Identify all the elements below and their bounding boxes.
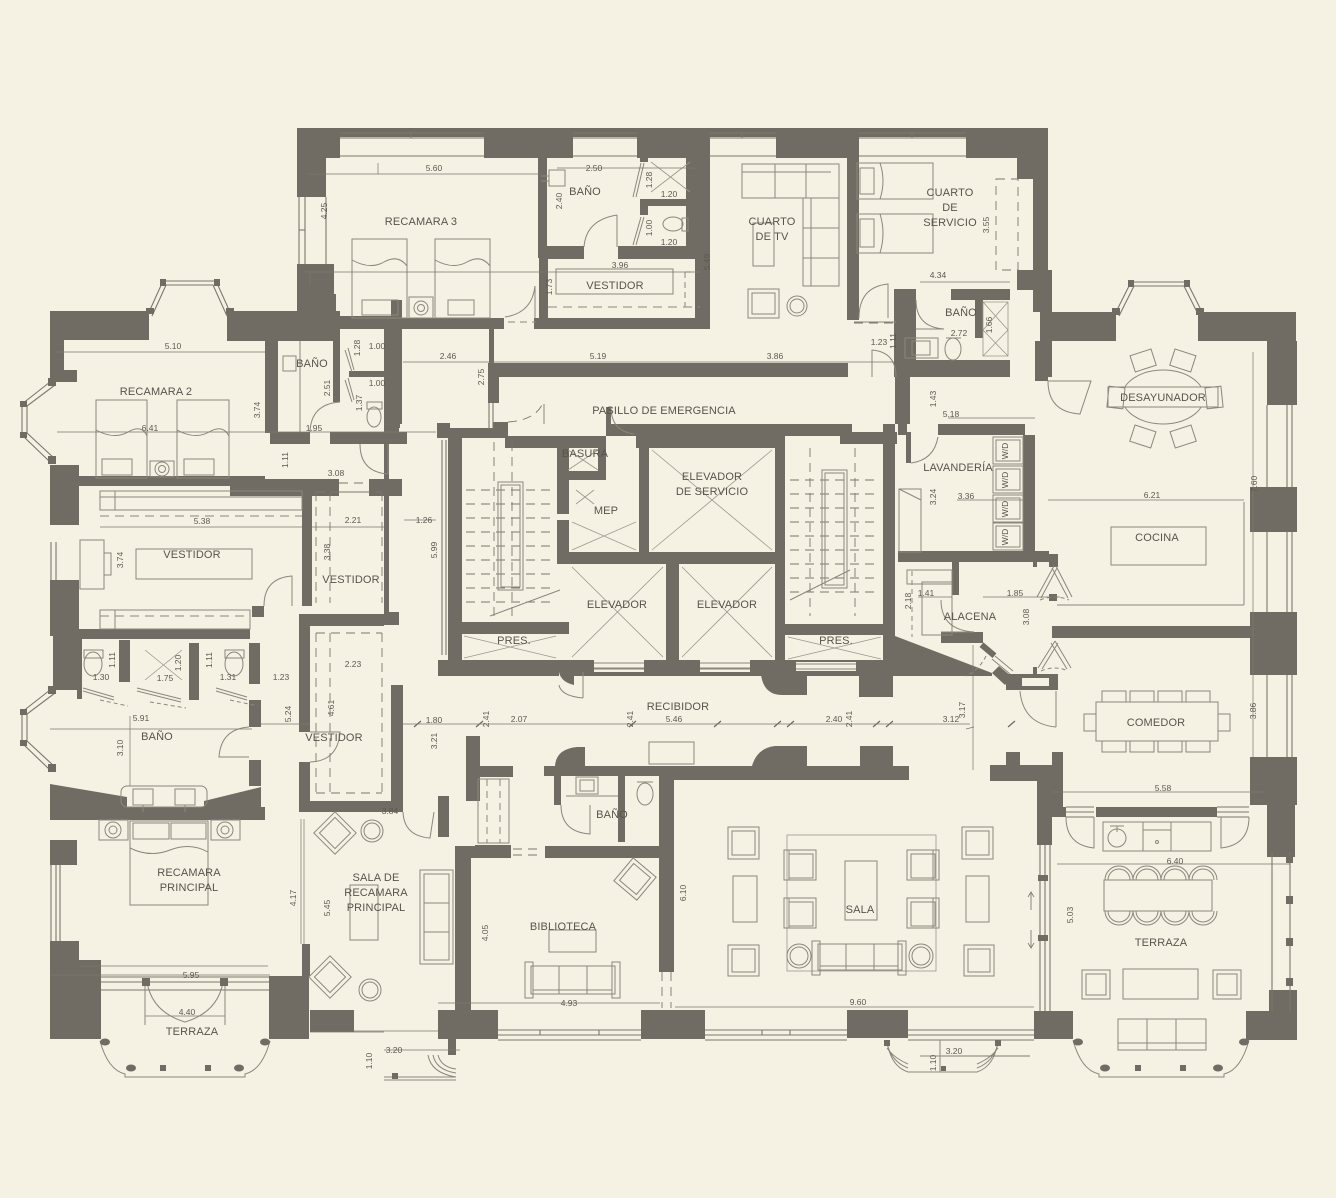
svg-text:3.86: 3.86 bbox=[1248, 702, 1258, 719]
svg-text:3.86: 3.86 bbox=[767, 351, 784, 361]
svg-text:1.11: 1.11 bbox=[888, 333, 898, 349]
svg-text:5.49: 5.49 bbox=[702, 253, 712, 270]
svg-text:2.41: 2.41 bbox=[844, 710, 854, 727]
svg-text:ELEVADOR: ELEVADOR bbox=[682, 471, 742, 483]
svg-text:5.99: 5.99 bbox=[429, 541, 439, 558]
svg-text:BAÑO: BAÑO bbox=[141, 730, 173, 743]
svg-text:VESTIDOR: VESTIDOR bbox=[322, 574, 379, 586]
svg-text:3.24: 3.24 bbox=[928, 488, 938, 505]
svg-text:4.61: 4.61 bbox=[326, 699, 336, 716]
svg-text:MEP: MEP bbox=[594, 505, 618, 517]
svg-text:6.40: 6.40 bbox=[1167, 856, 1184, 866]
svg-text:W/D: W/D bbox=[1000, 443, 1010, 460]
svg-text:4.17: 4.17 bbox=[288, 889, 298, 906]
svg-text:1.23: 1.23 bbox=[871, 337, 888, 347]
svg-text:W/D: W/D bbox=[1000, 529, 1010, 546]
svg-text:1.41: 1.41 bbox=[918, 588, 935, 598]
svg-text:BAÑO: BAÑO bbox=[296, 357, 328, 370]
svg-text:1.95: 1.95 bbox=[306, 423, 323, 433]
svg-text:RECAMARA 3: RECAMARA 3 bbox=[385, 216, 457, 228]
svg-text:BAÑO: BAÑO bbox=[945, 306, 977, 319]
svg-text:2.72: 2.72 bbox=[951, 328, 968, 338]
svg-text:3.96: 3.96 bbox=[612, 260, 629, 270]
svg-text:4.05: 4.05 bbox=[480, 924, 490, 941]
svg-text:1.80: 1.80 bbox=[426, 715, 443, 725]
svg-text:5.24: 5.24 bbox=[283, 705, 293, 722]
svg-text:2.18: 2.18 bbox=[903, 592, 913, 609]
svg-text:4.93: 4.93 bbox=[561, 998, 578, 1008]
svg-text:9.60: 9.60 bbox=[850, 997, 867, 1007]
svg-text:2.41: 2.41 bbox=[481, 710, 491, 727]
svg-text:1.11: 1.11 bbox=[204, 652, 214, 668]
svg-text:2.07: 2.07 bbox=[511, 714, 528, 724]
svg-text:1.75: 1.75 bbox=[157, 673, 174, 683]
svg-text:1.28: 1.28 bbox=[644, 171, 654, 188]
svg-text:2.21: 2.21 bbox=[345, 515, 362, 525]
svg-text:1.00: 1.00 bbox=[369, 341, 386, 351]
svg-text:3.84: 3.84 bbox=[382, 806, 399, 816]
svg-text:COCINA: COCINA bbox=[1135, 532, 1179, 544]
svg-text:BIBLIOTECA: BIBLIOTECA bbox=[530, 921, 597, 933]
svg-text:2.41: 2.41 bbox=[625, 710, 635, 727]
svg-text:1.11: 1.11 bbox=[107, 652, 117, 668]
svg-text:DESAYUNADOR: DESAYUNADOR bbox=[1120, 392, 1206, 404]
svg-text:1.10: 1.10 bbox=[364, 1052, 374, 1069]
svg-text:5.10: 5.10 bbox=[165, 341, 182, 351]
svg-text:1.30: 1.30 bbox=[93, 672, 110, 682]
svg-text:SERVICIO: SERVICIO bbox=[923, 217, 977, 229]
svg-text:DE: DE bbox=[942, 202, 958, 214]
svg-text:PRES.: PRES. bbox=[819, 635, 853, 647]
svg-text:VESTIDOR: VESTIDOR bbox=[586, 280, 643, 292]
svg-text:LAVANDERÍA: LAVANDERÍA bbox=[923, 461, 993, 474]
svg-text:3.74: 3.74 bbox=[252, 401, 262, 418]
svg-text:1.66: 1.66 bbox=[984, 316, 994, 333]
svg-text:2.40: 2.40 bbox=[826, 714, 843, 724]
svg-text:1.37: 1.37 bbox=[354, 394, 364, 411]
svg-text:ELEVADOR: ELEVADOR bbox=[697, 599, 757, 611]
svg-text:3.36: 3.36 bbox=[958, 491, 975, 501]
svg-text:5.91: 5.91 bbox=[133, 713, 150, 723]
svg-text:W/D: W/D bbox=[1000, 472, 1010, 489]
svg-text:PASILLO DE EMERGENCIA: PASILLO DE EMERGENCIA bbox=[592, 405, 736, 417]
svg-text:RECAMARA: RECAMARA bbox=[344, 887, 408, 899]
svg-text:5.19: 5.19 bbox=[590, 351, 607, 361]
svg-text:6.10: 6.10 bbox=[678, 884, 688, 901]
svg-text:4.40: 4.40 bbox=[179, 1007, 196, 1017]
svg-text:SALA DE: SALA DE bbox=[353, 872, 400, 884]
svg-text:PRES.: PRES. bbox=[497, 635, 531, 647]
svg-text:1.85: 1.85 bbox=[1007, 588, 1024, 598]
svg-text:4.25: 4.25 bbox=[319, 202, 329, 219]
svg-text:5.46: 5.46 bbox=[666, 714, 683, 724]
svg-text:1.00: 1.00 bbox=[644, 219, 654, 236]
svg-text:ALACENA: ALACENA bbox=[944, 611, 997, 623]
svg-text:3.20: 3.20 bbox=[946, 1046, 963, 1056]
svg-text:3.17: 3.17 bbox=[957, 701, 967, 718]
svg-text:DE TV: DE TV bbox=[756, 231, 789, 243]
svg-text:6.41: 6.41 bbox=[142, 423, 159, 433]
svg-text:1.11: 1.11 bbox=[280, 452, 290, 468]
svg-text:1.31: 1.31 bbox=[220, 672, 237, 682]
svg-text:1.10: 1.10 bbox=[928, 1054, 938, 1071]
svg-text:5.95: 5.95 bbox=[183, 970, 200, 980]
svg-text:5.45: 5.45 bbox=[322, 899, 332, 916]
svg-text:3.55: 3.55 bbox=[981, 216, 991, 233]
svg-text:DE SERVICIO: DE SERVICIO bbox=[676, 486, 749, 498]
svg-text:CUARTO: CUARTO bbox=[927, 187, 974, 199]
svg-text:BAÑO: BAÑO bbox=[569, 185, 601, 198]
svg-text:2.50: 2.50 bbox=[586, 163, 603, 173]
svg-text:TERRAZA: TERRAZA bbox=[1135, 937, 1188, 949]
svg-text:3.74: 3.74 bbox=[115, 551, 125, 568]
svg-text:1.26: 1.26 bbox=[416, 515, 433, 525]
svg-text:COMEDOR: COMEDOR bbox=[1127, 717, 1186, 729]
svg-text:1.43: 1.43 bbox=[928, 390, 938, 407]
svg-text:BAÑO: BAÑO bbox=[596, 808, 628, 821]
svg-text:4.34: 4.34 bbox=[930, 270, 947, 280]
svg-text:3.08: 3.08 bbox=[1021, 608, 1031, 625]
svg-text:PRINCIPAL: PRINCIPAL bbox=[160, 882, 219, 894]
svg-text:RECAMARA 2: RECAMARA 2 bbox=[120, 386, 192, 398]
svg-text:5.03: 5.03 bbox=[1065, 906, 1075, 923]
svg-text:CUARTO: CUARTO bbox=[749, 216, 796, 228]
svg-text:BASURA: BASURA bbox=[562, 448, 609, 460]
svg-text:3.38: 3.38 bbox=[322, 543, 332, 560]
svg-text:5.60: 5.60 bbox=[426, 163, 443, 173]
svg-text:6.21: 6.21 bbox=[1144, 490, 1161, 500]
svg-text:1.23: 1.23 bbox=[273, 672, 290, 682]
svg-text:3.10: 3.10 bbox=[115, 739, 125, 756]
svg-text:3.21: 3.21 bbox=[429, 732, 439, 749]
svg-text:ELEVADOR: ELEVADOR bbox=[587, 599, 647, 611]
svg-text:5.58: 5.58 bbox=[1155, 783, 1172, 793]
svg-text:W/D: W/D bbox=[1000, 501, 1010, 518]
svg-text:1.73: 1.73 bbox=[544, 278, 554, 295]
svg-text:VESTIDOR: VESTIDOR bbox=[163, 549, 220, 561]
svg-text:1.20: 1.20 bbox=[173, 654, 183, 671]
svg-text:PRINCIPAL: PRINCIPAL bbox=[347, 902, 406, 914]
svg-text:1.28: 1.28 bbox=[352, 339, 362, 356]
svg-text:5.38: 5.38 bbox=[194, 516, 211, 526]
svg-text:2.75: 2.75 bbox=[476, 368, 486, 385]
svg-text:2.40: 2.40 bbox=[554, 192, 564, 209]
svg-text:VESTIDOR: VESTIDOR bbox=[305, 732, 362, 744]
svg-text:3.20: 3.20 bbox=[386, 1045, 403, 1055]
svg-text:5.18: 5.18 bbox=[943, 409, 960, 419]
svg-text:RECAMARA: RECAMARA bbox=[157, 867, 221, 879]
svg-text:2.23: 2.23 bbox=[345, 659, 362, 669]
svg-text:1.20: 1.20 bbox=[661, 189, 678, 199]
svg-text:TERRAZA: TERRAZA bbox=[166, 1026, 219, 1038]
svg-text:1.00: 1.00 bbox=[369, 378, 386, 388]
svg-text:2.46: 2.46 bbox=[440, 351, 457, 361]
svg-text:1.20: 1.20 bbox=[661, 237, 678, 247]
svg-text:SALA: SALA bbox=[846, 904, 875, 916]
svg-text:2.51: 2.51 bbox=[322, 379, 332, 396]
svg-text:7.60: 7.60 bbox=[1249, 475, 1259, 492]
svg-text:3.08: 3.08 bbox=[328, 468, 345, 478]
svg-text:RECIBIDOR: RECIBIDOR bbox=[647, 701, 709, 713]
